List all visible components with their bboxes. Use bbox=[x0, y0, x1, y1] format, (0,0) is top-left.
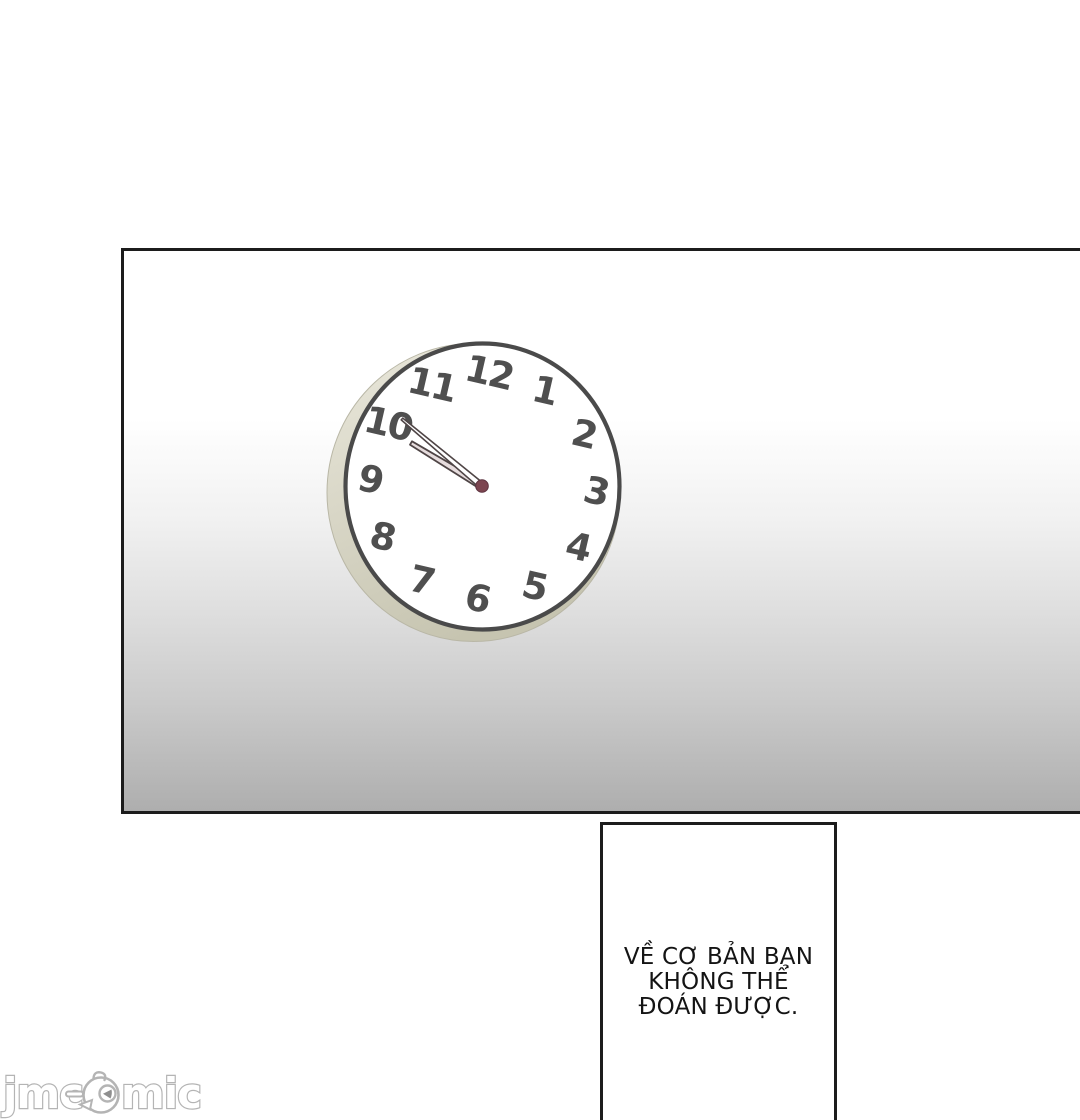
wall-clock: 12 1 2 3 4 5 6 7 8 9 10 11 bbox=[320, 335, 630, 650]
caption-line: ĐOÁN ĐƯỢC. bbox=[603, 995, 834, 1020]
watermark-text-right: mic bbox=[121, 1069, 201, 1118]
comic-page: 12 1 2 3 4 5 6 7 8 9 10 11 VỀ CƠ BẢN BẠN… bbox=[0, 0, 1080, 1120]
caption-panel: VỀ CƠ BẢN BẠN KHÔNG THỂ ĐOÁN ĐƯỢC. bbox=[600, 822, 837, 1120]
clock-center-dot bbox=[476, 480, 489, 493]
caption-text: VỀ CƠ BẢN BẠN KHÔNG THỂ ĐOÁN ĐƯỢC. bbox=[603, 945, 834, 1020]
watermark-jmcomic: jmc mic bbox=[0, 1062, 230, 1120]
bird-tail bbox=[66, 1092, 83, 1097]
caption-line: VỀ CƠ BẢN BẠN bbox=[603, 945, 834, 970]
caption-line: KHÔNG THỂ bbox=[603, 970, 834, 995]
